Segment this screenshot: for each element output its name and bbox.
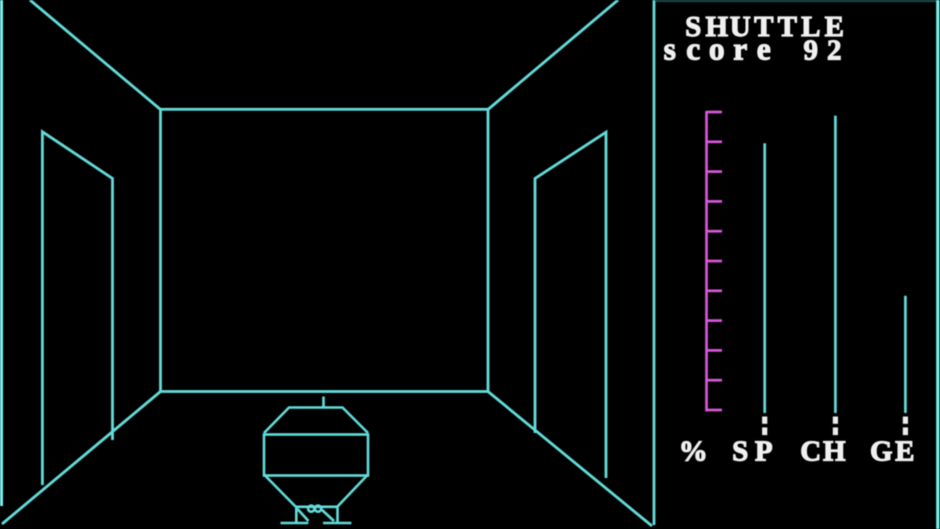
svg-text:SP: SP: [732, 436, 772, 468]
svg-text:92: 92: [804, 35, 842, 67]
svg-text:GE: GE: [870, 436, 914, 468]
svg-text:%: %: [679, 436, 708, 468]
svg-text:CH: CH: [800, 436, 846, 468]
